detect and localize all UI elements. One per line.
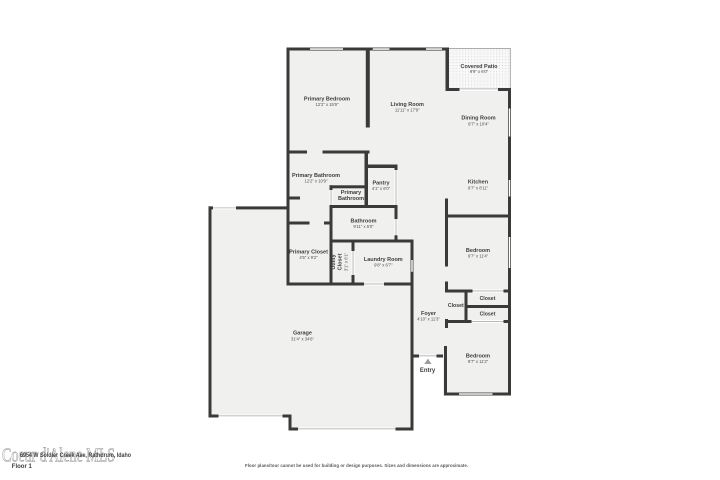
svg-text:9'7" x 10'4": 9'7" x 10'4" <box>468 121 489 126</box>
svg-text:3'1" x 6'1": 3'1" x 6'1" <box>344 252 349 271</box>
svg-text:Floor 1: Floor 1 <box>12 464 33 470</box>
svg-text:Closet: Closet <box>448 303 464 309</box>
svg-text:Bathroom: Bathroom <box>338 196 364 202</box>
svg-text:4'1" x 6'0": 4'1" x 6'0" <box>372 186 391 191</box>
svg-text:9'11" x 5'0": 9'11" x 5'0" <box>353 224 374 229</box>
svg-text:9'9" x 6'0": 9'9" x 6'0" <box>470 69 489 74</box>
svg-text:Floor plans/tour cannot be use: Floor plans/tour cannot be used for buil… <box>245 463 468 468</box>
svg-text:Closet: Closet <box>480 296 496 302</box>
svg-text:12'2" x 15'9": 12'2" x 15'9" <box>316 102 339 107</box>
svg-text:11'11" x 17'9": 11'11" x 17'9" <box>395 107 420 112</box>
svg-text:6954 W Soldier Creek Ave, Rath: 6954 W Soldier Creek Ave, Rathdrum, Idah… <box>20 453 131 459</box>
svg-text:9'8" x 6'7": 9'8" x 6'7" <box>374 263 393 268</box>
svg-text:9'7" x 8'11": 9'7" x 8'11" <box>468 185 489 190</box>
svg-text:Utility: Utility <box>331 253 337 269</box>
svg-text:Closet: Closet <box>480 311 496 317</box>
svg-text:9'7" x 11'2": 9'7" x 11'2" <box>468 359 489 364</box>
svg-text:9'7" x 11'4": 9'7" x 11'4" <box>468 254 489 259</box>
svg-text:12'2" x 10'9": 12'2" x 10'9" <box>305 178 328 183</box>
svg-text:Entry: Entry <box>420 368 436 374</box>
svg-text:31'4" x 34'6": 31'4" x 34'6" <box>291 336 314 341</box>
svg-text:4'10" x 11'3": 4'10" x 11'3" <box>417 317 440 322</box>
svg-text:4'5" x 9'2": 4'5" x 9'2" <box>299 255 318 260</box>
